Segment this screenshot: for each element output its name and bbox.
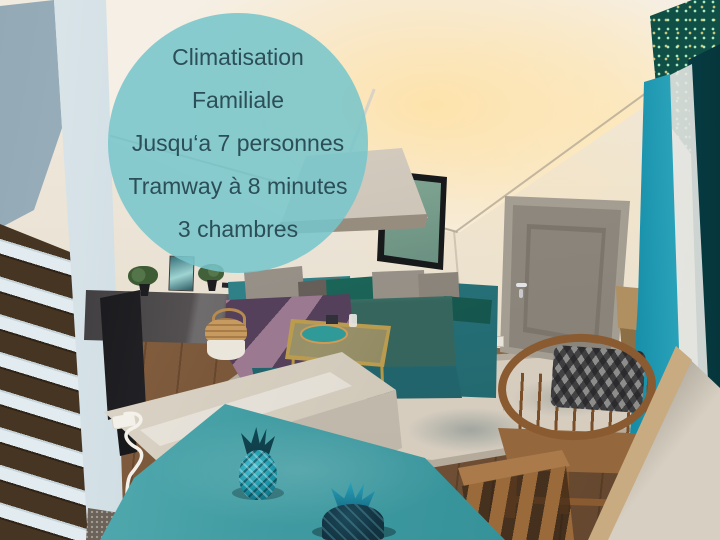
table-decor-item xyxy=(326,315,338,324)
info-circle-overlay: Climatisation Familiale Jusqu‘a 7 person… xyxy=(108,13,368,273)
decor-tray xyxy=(300,324,348,344)
overlay-line: 3 chambres xyxy=(178,208,298,251)
overlay-line: Jusqu‘a 7 personnes xyxy=(132,122,344,165)
overlay-line: Climatisation xyxy=(172,36,304,79)
door-keyplate xyxy=(519,289,523,298)
overlay-line: Tramway à 8 minutes xyxy=(129,165,348,208)
pineapple-decor xyxy=(239,450,277,500)
pineapple-decor xyxy=(322,504,384,540)
door-handle xyxy=(516,283,527,287)
listing-photo: Climatisation Familiale Jusqu‘a 7 person… xyxy=(0,0,720,540)
overlay-line: Familiale xyxy=(192,79,284,122)
candle xyxy=(349,314,357,327)
storage-basket-base xyxy=(207,340,245,360)
